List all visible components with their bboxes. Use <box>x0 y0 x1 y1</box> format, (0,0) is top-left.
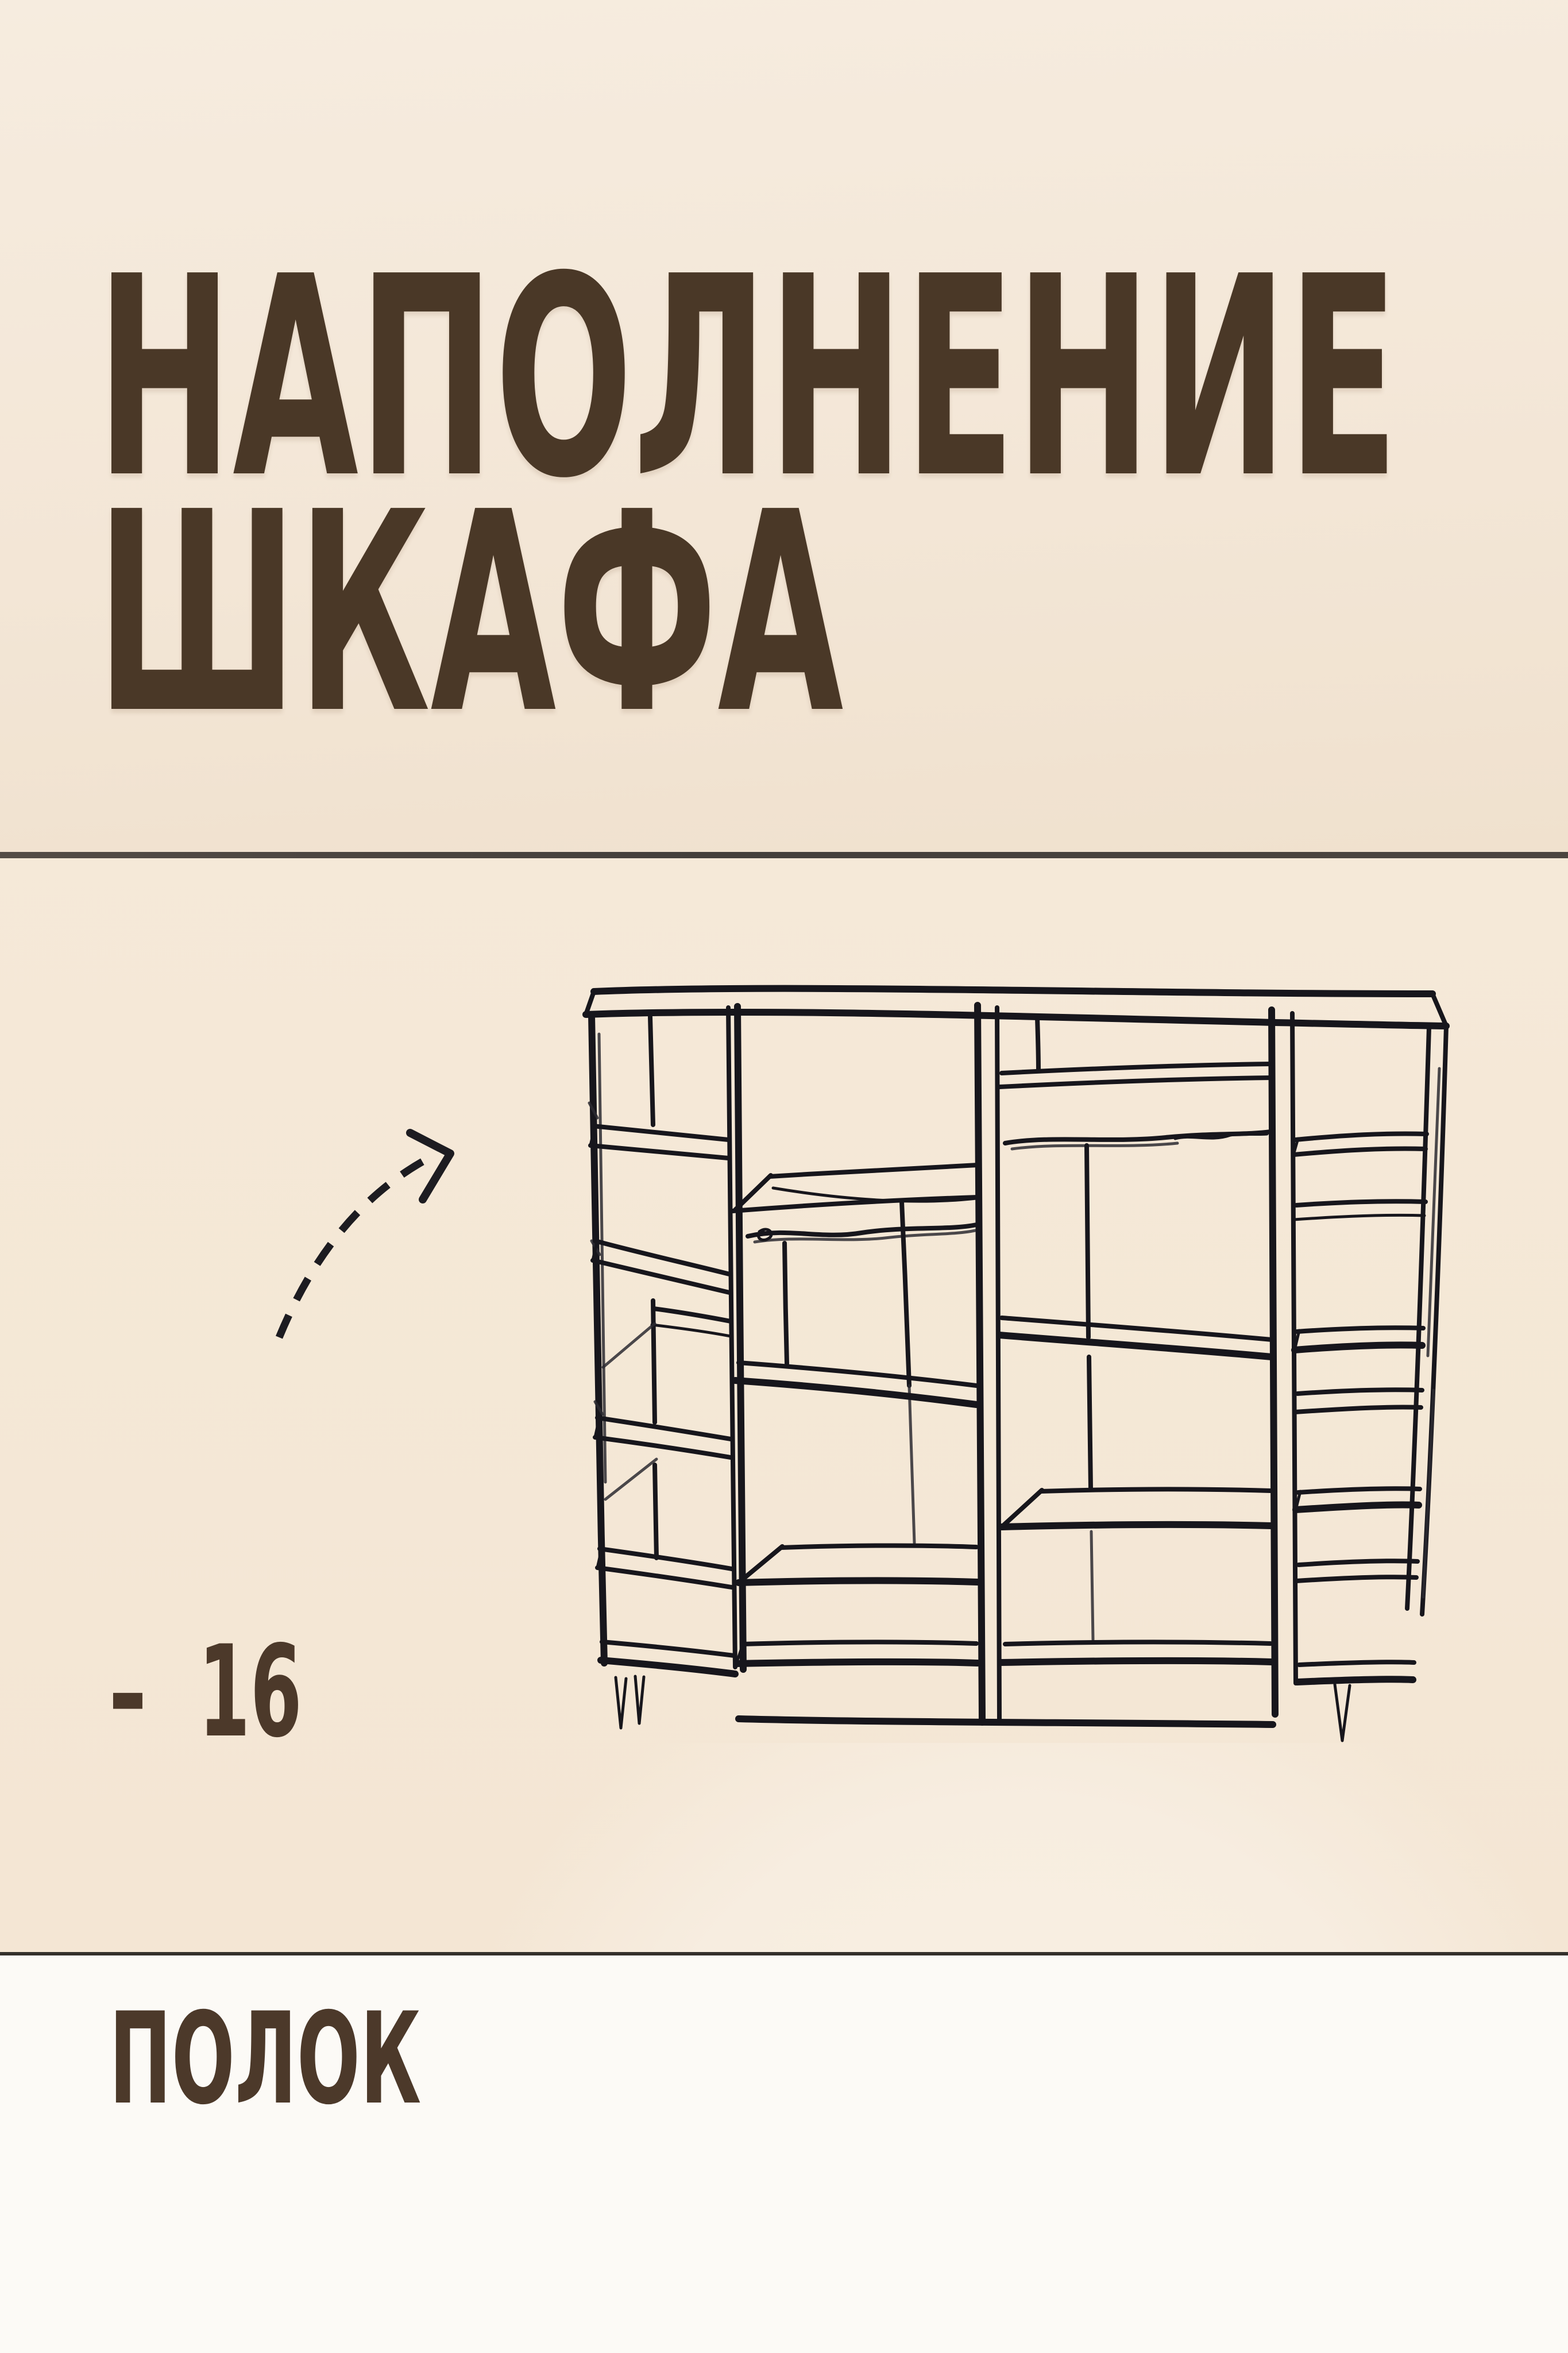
infographic-page: НАПОЛНЕНИЕ ШКАФА – 16 ПОЛОК <box>0 0 1568 2353</box>
wardrobe-interior-sketch <box>546 919 1493 1752</box>
page-title: НАПОЛНЕНИЕ ШКАФА <box>96 261 1399 732</box>
horizontal-divider-top <box>0 852 1568 858</box>
annotation-line-2: ПОЛОК <box>109 1998 421 2120</box>
shelf-count-annotation: – 16 ПОЛОК <box>109 1386 421 2353</box>
annotation-line-1: – 16 <box>109 1631 421 1753</box>
dashed-curved-arrow-icon <box>247 1120 494 1367</box>
